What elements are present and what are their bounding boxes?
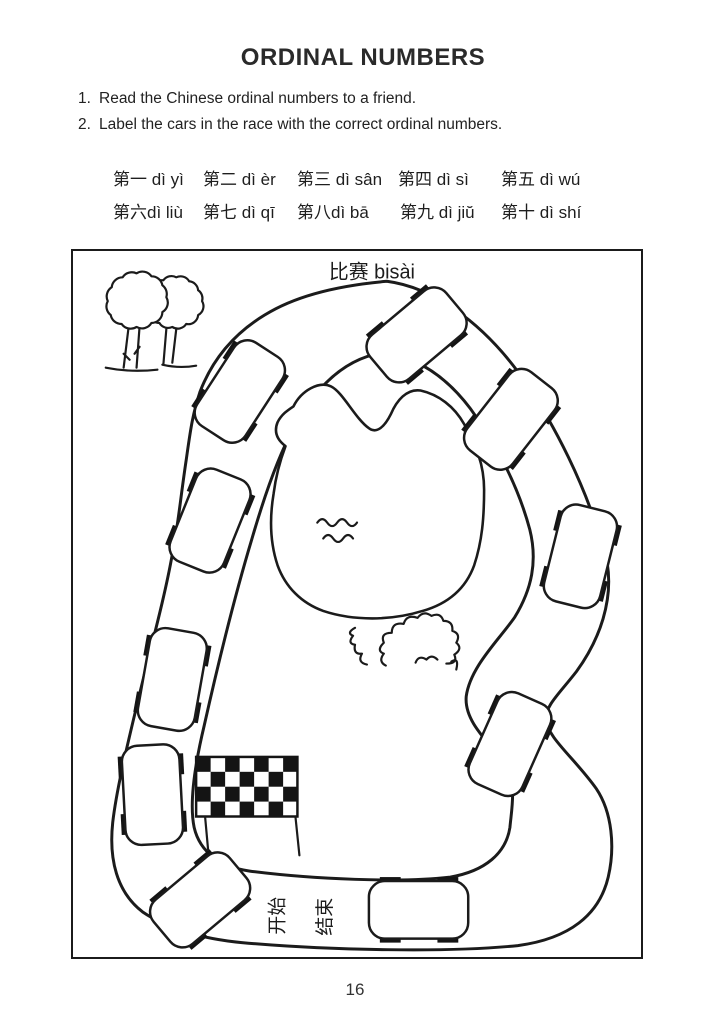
race-car-left-lower — [117, 743, 188, 846]
race-car-right — [537, 500, 625, 612]
ordinal-item-9: 第九 dì jiŭ — [400, 198, 475, 223]
instruction-number: 1. — [78, 90, 99, 108]
race-car-bottom — [369, 877, 468, 943]
ordinal-item-7: 第七 dì qī — [203, 198, 275, 223]
start-label: 开始 — [267, 897, 288, 935]
worksheet-page: ORDINAL NUMBERS 1. Read the Chinese ordi… — [0, 0, 726, 1024]
bush-icon — [350, 613, 459, 669]
ordinal-item-6: 第六dì liù — [113, 198, 183, 223]
ordinal-item-8: 第八dì bā — [297, 198, 369, 223]
instruction-text: Label the cars in the race with the corr… — [99, 116, 502, 134]
ordinal-item-4: 第四 dì sì — [398, 165, 469, 190]
flag-checker-pattern — [196, 757, 297, 817]
flag-pole — [205, 817, 299, 856]
page-number: 16 — [0, 980, 710, 1000]
instruction-text: Read the Chinese ordinal numbers to a fr… — [99, 90, 416, 108]
race-car-left — [131, 625, 213, 734]
checkered-flag-icon — [196, 757, 299, 855]
ordinal-item-1: 第一 dì yì — [113, 165, 184, 190]
race-car-top — [357, 278, 475, 392]
instruction-item-1: 1. Read the Chinese ordinal numbers to a… — [78, 90, 416, 108]
ordinal-item-5: 第五 dì wú — [501, 165, 580, 190]
finish-label: 结束 — [314, 898, 335, 936]
ordinal-item-2: 第二 dì èr — [203, 165, 276, 190]
ordinal-item-3: 第三 dì sân — [297, 165, 382, 190]
race-car-bottom-left — [141, 843, 259, 957]
race-illustration-canvas: 比赛 bisài — [73, 251, 641, 957]
race-illustration: 比赛 bisài — [71, 249, 643, 959]
page-title: ORDINAL NUMBERS — [0, 44, 726, 72]
race-caption: 比赛 bisài — [329, 261, 415, 283]
instruction-number: 2. — [78, 116, 99, 134]
race-car-lower-right — [460, 685, 560, 802]
trees-icon — [106, 272, 204, 371]
instruction-item-2: 2. Label the cars in the race with the c… — [78, 116, 502, 134]
pond — [271, 385, 484, 619]
ordinal-item-10: 第十 dì shí — [501, 198, 581, 223]
